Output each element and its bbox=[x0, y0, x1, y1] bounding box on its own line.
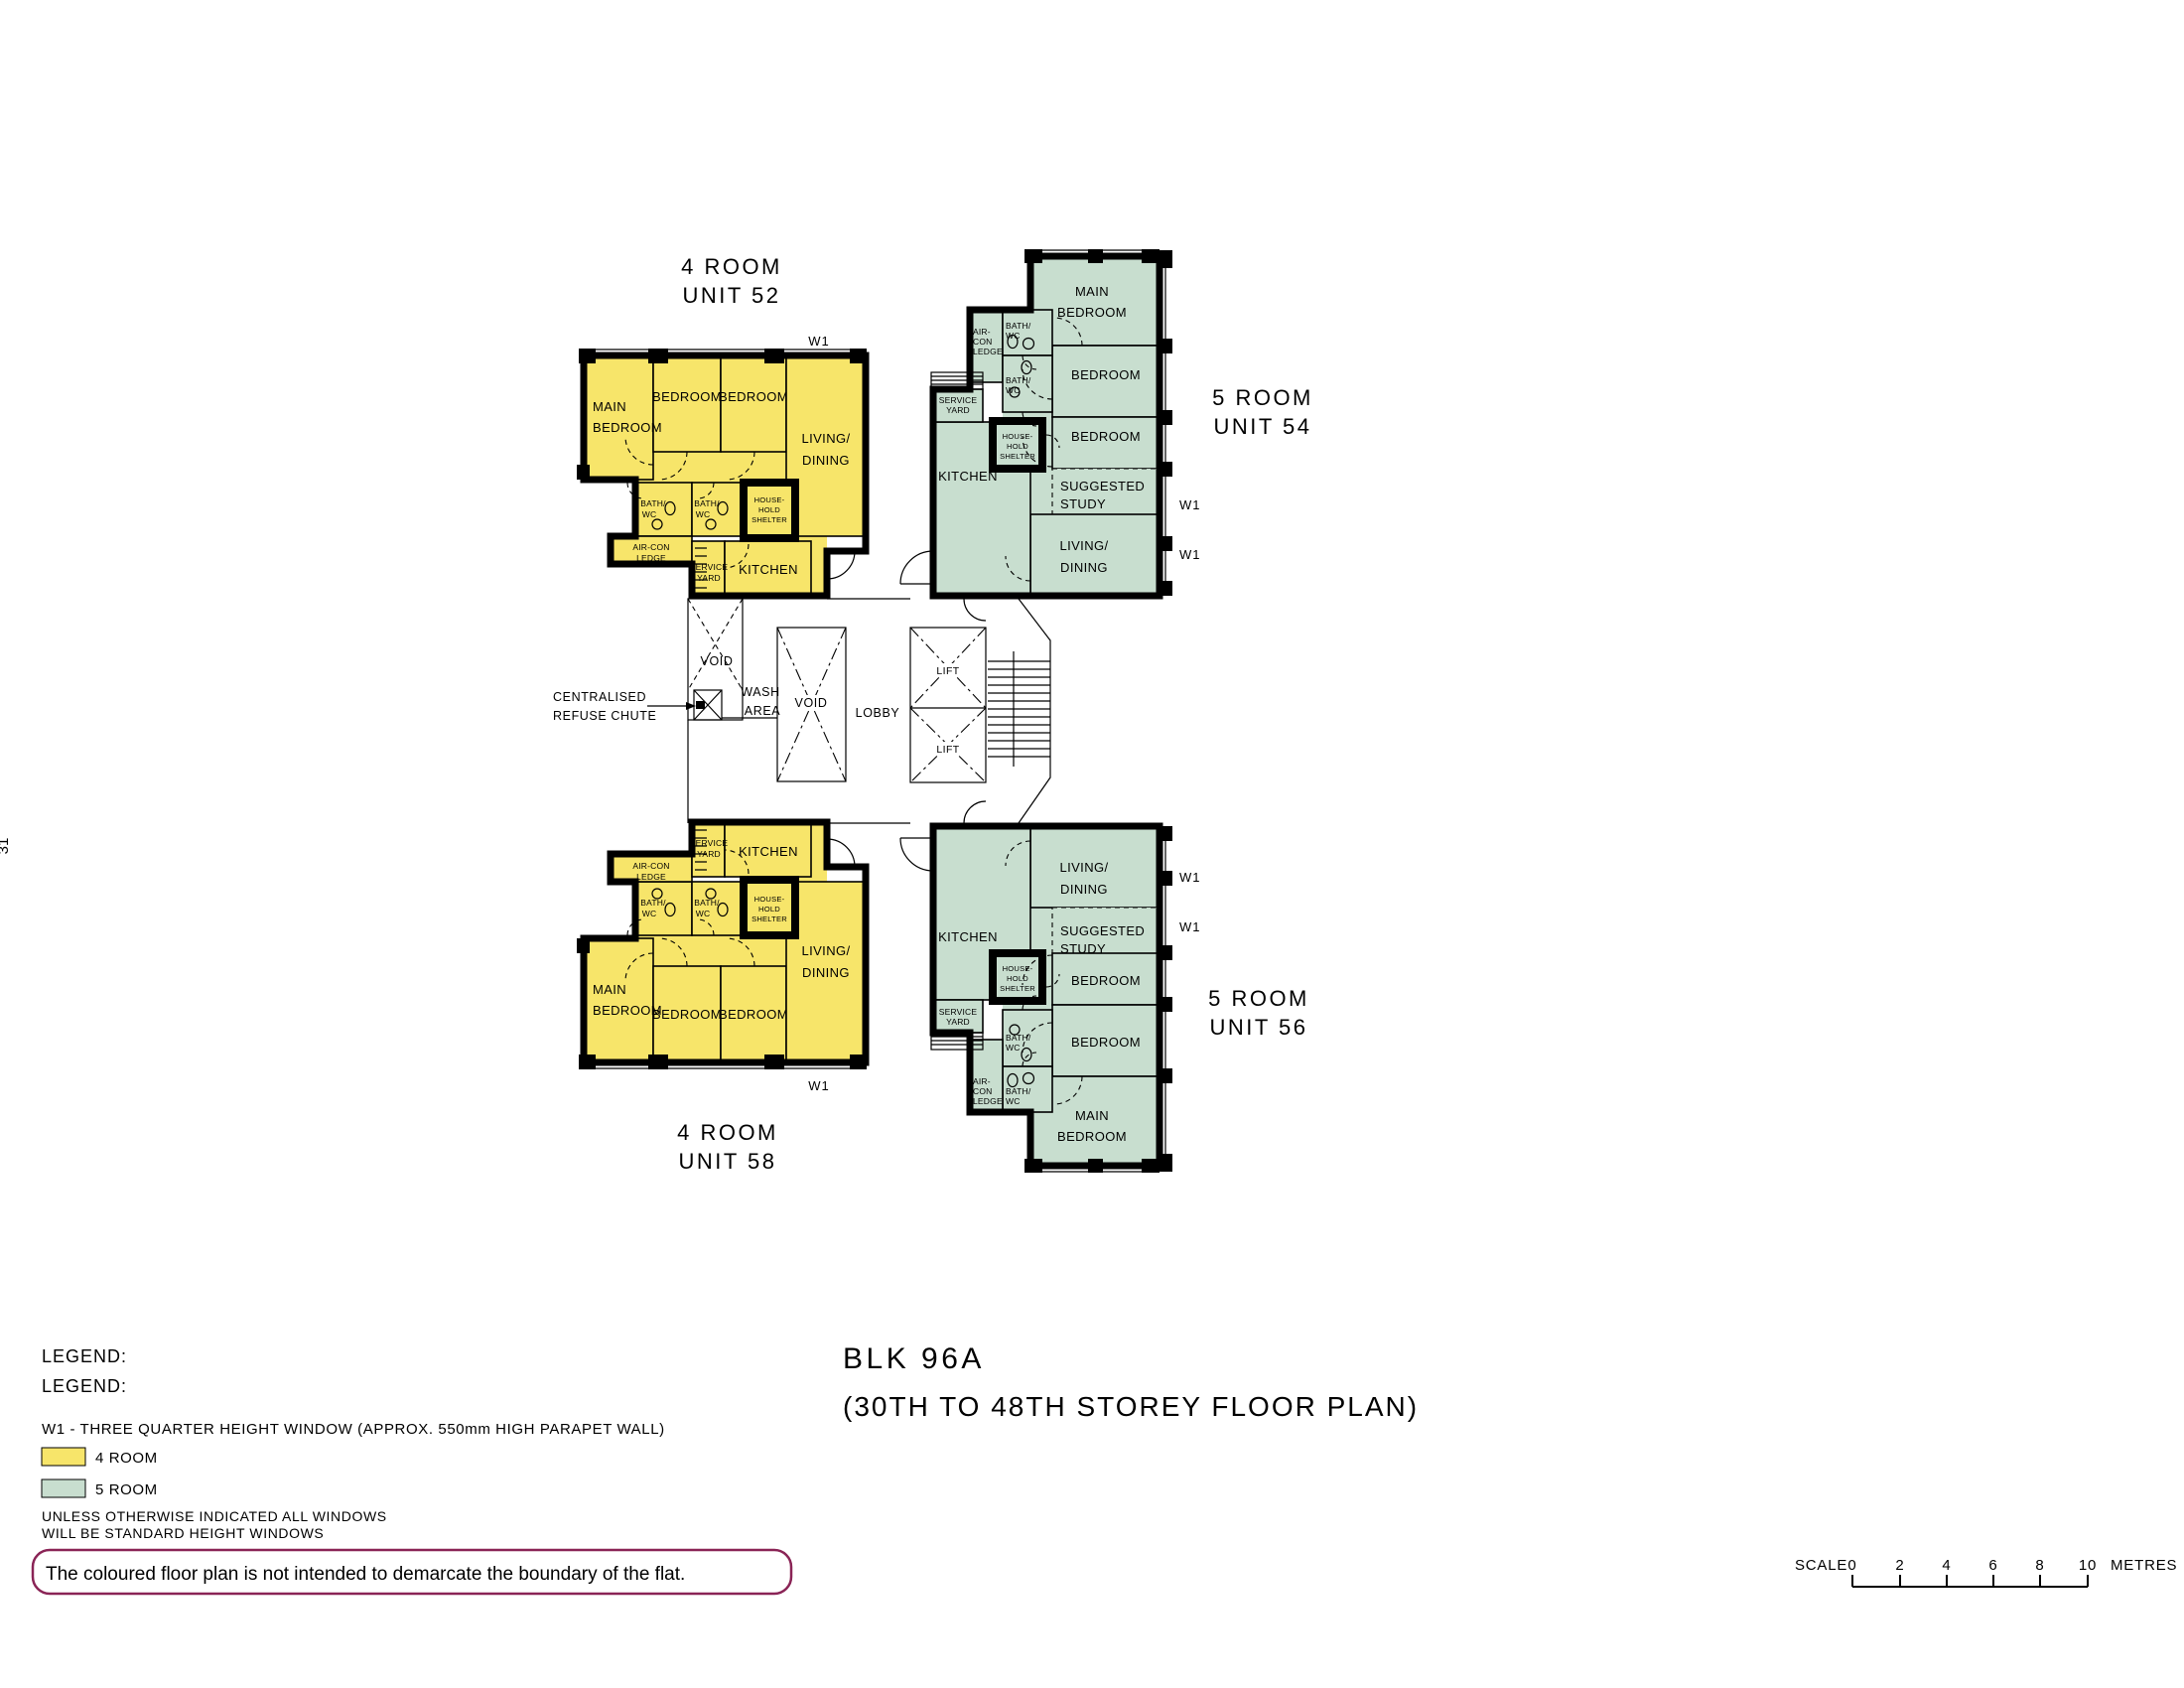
unit-58: MAIN BEDROOM BEDROOM BEDROOM LIVING/ DIN… bbox=[577, 822, 867, 1174]
unit56-shelter-label-3: SHELTER bbox=[1000, 984, 1035, 993]
unit56-study-label-1: SUGGESTED bbox=[1060, 923, 1145, 938]
unit58-living-label-2: DINING bbox=[802, 965, 850, 980]
unit56-title-type: 5 ROOM bbox=[1208, 986, 1309, 1011]
unit52-main-bedroom-label-1: MAIN bbox=[593, 399, 626, 414]
unit54-title-number: UNIT 54 bbox=[1213, 414, 1311, 439]
disclaimer-text: The coloured floor plan is not intended … bbox=[46, 1564, 685, 1585]
unit56-living-label-2: DINING bbox=[1060, 882, 1108, 897]
scale-bar: SCALE 0 2 4 6 8 10 METRES bbox=[1795, 1557, 2177, 1587]
unit58-title-number: UNIT 58 bbox=[678, 1149, 776, 1174]
unit56-aircon-label-3: LEDGE bbox=[973, 1096, 1003, 1106]
block-title: BLK 96A bbox=[843, 1342, 985, 1375]
unit54-shelter-label-1: HOUSE- bbox=[1003, 432, 1033, 441]
unit58-bedroom-a-label: BEDROOM bbox=[652, 1007, 722, 1022]
unit54-kitchen-label: KITCHEN bbox=[938, 469, 998, 484]
legend-windows-note-1: UNLESS OTHERWISE INDICATED ALL WINDOWS bbox=[42, 1508, 387, 1524]
unit52-living-label-1: LIVING/ bbox=[801, 431, 850, 446]
unit56-bedroom-b-label: BEDROOM bbox=[1071, 973, 1141, 988]
unit54-entrance-door bbox=[900, 551, 933, 584]
unit58-entrance-door bbox=[827, 839, 855, 867]
unit52-bath-a-label-1: BATH/ bbox=[640, 498, 666, 508]
unit58-shelter-label-3: SHELTER bbox=[751, 914, 787, 923]
unit52-kitchen-label: KITCHEN bbox=[739, 562, 798, 577]
unit58-living-label-1: LIVING/ bbox=[801, 943, 850, 958]
legend-label-5room: 5 ROOM bbox=[95, 1481, 158, 1498]
unit54-bedroom-a-label: BEDROOM bbox=[1071, 367, 1141, 382]
unit56-bath-b-label-2: WC bbox=[1006, 1043, 1021, 1053]
unit56-shelter-label-1: HOUSE- bbox=[1003, 964, 1033, 973]
void-small-label: VOID bbox=[701, 654, 734, 668]
central-core: VOID CENTRALISED REFUSE CHUTE WASH AREA … bbox=[553, 599, 1050, 823]
unit58-bedroom-b-label: BEDROOM bbox=[719, 1007, 788, 1022]
unit54-w1-tag-a: W1 bbox=[1179, 497, 1201, 512]
unit56-aircon-label-1: AIR- bbox=[973, 1076, 991, 1086]
scale-tick-8: 8 bbox=[2035, 1557, 2044, 1574]
legend-windows-note-2: WILL BE STANDARD HEIGHT WINDOWS bbox=[42, 1525, 324, 1541]
unit52-bath-b-label-1: BATH/ bbox=[694, 498, 720, 508]
unit54-bath-b-label-1: BATH/ bbox=[1006, 375, 1031, 385]
refuse-chute-label-1: CENTRALISED bbox=[553, 690, 646, 704]
unit54-title-type: 5 ROOM bbox=[1212, 385, 1313, 410]
unit56-kitchen-label: KITCHEN bbox=[938, 929, 998, 944]
scale-tick-2: 2 bbox=[1895, 1557, 1904, 1574]
unit54-bath-b-label-2: WC bbox=[1006, 385, 1021, 395]
unit56-entrance-door bbox=[900, 838, 933, 871]
staircase bbox=[964, 599, 1050, 823]
unit58-service-label-1: SERVICE bbox=[690, 838, 729, 848]
unit54-bedroom-b-label: BEDROOM bbox=[1071, 429, 1141, 444]
scale-bar-line bbox=[1852, 1575, 2088, 1587]
scale-label: SCALE bbox=[1795, 1557, 1847, 1574]
block-subtitle: (30TH TO 48TH STOREY FLOOR PLAN) bbox=[843, 1391, 1419, 1422]
floor-plan-drawing: MAIN BEDROOM BEDROOM BEDROOM LIVING/ DIN… bbox=[0, 0, 2184, 1688]
unit58-shelter-label-1: HOUSE- bbox=[754, 895, 785, 904]
lift-b-label: LIFT bbox=[936, 744, 959, 756]
unit54-service-label-1: SERVICE bbox=[939, 395, 978, 405]
wash-area-label-1: WASH bbox=[741, 685, 779, 699]
unit56-shelter-label-2: HOLD bbox=[1007, 974, 1028, 983]
unit54-main-bedroom-label-2: BEDROOM bbox=[1057, 305, 1127, 320]
legend-swatch-5room bbox=[42, 1479, 85, 1497]
unit56-bedroom-a-label: BEDROOM bbox=[1071, 1035, 1141, 1050]
unit56-w1-tag-a: W1 bbox=[1179, 870, 1201, 885]
lift-shaft bbox=[910, 628, 986, 782]
unit52-title-number: UNIT 52 bbox=[682, 283, 780, 308]
unit54-shelter-label-2: HOLD bbox=[1007, 442, 1028, 451]
unit56-title-number: UNIT 56 bbox=[1209, 1015, 1307, 1040]
unit54-service-label-2: YARD bbox=[946, 405, 970, 415]
unit56-w1-tag-b: W1 bbox=[1179, 919, 1201, 934]
unit-56: LIVING/ DINING SUGGESTED STUDY BEDROOM B… bbox=[900, 826, 1309, 1173]
unit54-aircon-label-1: AIR- bbox=[973, 327, 991, 337]
unit52-aircon-label-1: AIR-CON bbox=[632, 542, 669, 552]
void-small-cross bbox=[688, 599, 743, 690]
unit52-aircon-label-2: LEDGE bbox=[636, 553, 666, 563]
unit58-service-label-2: YARD bbox=[697, 849, 721, 859]
unit58-bath-a-label-2: WC bbox=[642, 909, 657, 918]
lift-a-label: LIFT bbox=[936, 665, 959, 677]
wash-area-label-2: AREA bbox=[745, 704, 781, 718]
scale-tick-10: 10 bbox=[2079, 1557, 2097, 1574]
unit52-bath-a-label-2: WC bbox=[642, 509, 657, 519]
unit54-main-bedroom-label-1: MAIN bbox=[1075, 284, 1109, 299]
scale-tick-6: 6 bbox=[1988, 1557, 1997, 1574]
legend-label-4room: 4 ROOM bbox=[95, 1450, 158, 1467]
unit54-aircon-label-2: CON bbox=[973, 337, 993, 347]
unit58-kitchen-label: KITCHEN bbox=[739, 844, 798, 859]
unit58-hall bbox=[635, 935, 786, 966]
unit52-title-type: 4 ROOM bbox=[681, 254, 782, 279]
void-big-label: VOID bbox=[795, 696, 828, 710]
unit58-w1-tag: W1 bbox=[808, 1078, 830, 1093]
unit52-shelter-label-1: HOUSE- bbox=[754, 495, 785, 504]
unit52-shelter-label-2: HOLD bbox=[758, 505, 780, 514]
unit54-bath-a-label-2: WC bbox=[1006, 331, 1021, 341]
unit54-living-label-1: LIVING/ bbox=[1059, 538, 1108, 553]
unit52-bath-b-label-2: WC bbox=[696, 509, 711, 519]
legend-heading-2: LEGEND: bbox=[42, 1376, 127, 1396]
unit56-bath-a-label-2: WC bbox=[1006, 1096, 1021, 1106]
unit52-entrance-door bbox=[827, 551, 855, 579]
legend-swatch-4room bbox=[42, 1448, 85, 1466]
unit58-title-type: 4 ROOM bbox=[677, 1120, 778, 1145]
unit54-study-label-2: STUDY bbox=[1060, 496, 1106, 511]
unit54-living-label-2: DINING bbox=[1060, 560, 1108, 575]
refuse-chute-marker bbox=[696, 701, 705, 709]
legend-heading-1: LEGEND: bbox=[42, 1346, 127, 1366]
unit52-service-label-2: YARD bbox=[697, 573, 721, 583]
floor-plan-sheet: MAIN BEDROOM BEDROOM BEDROOM LIVING/ DIN… bbox=[0, 0, 2184, 1688]
unit58-bath-a-label-1: BATH/ bbox=[640, 898, 666, 908]
unit56-main-bedroom-label-1: MAIN bbox=[1075, 1108, 1109, 1123]
unit56-aircon-label-2: CON bbox=[973, 1086, 993, 1096]
unit56-study-label-2: STUDY bbox=[1060, 941, 1106, 956]
unit58-aircon-label-1: AIR-CON bbox=[632, 861, 669, 871]
unit54-bath-a-label-1: BATH/ bbox=[1006, 321, 1031, 331]
unit54-study-label-1: SUGGESTED bbox=[1060, 479, 1145, 493]
unit58-aircon-label-2: LEDGE bbox=[636, 872, 666, 882]
unit52-service-label-1: SERVICE bbox=[690, 562, 729, 572]
unit56-service-label-2: YARD bbox=[946, 1017, 970, 1027]
unit52-main-bedroom bbox=[584, 355, 653, 480]
title-block: BLK 96A (30TH TO 48TH STOREY FLOOR PLAN) bbox=[843, 1342, 1419, 1422]
unit58-bath-b-label-1: BATH/ bbox=[694, 898, 720, 908]
legend: LEGEND: LEGEND: W1 - THREE QUARTER HEIGH… bbox=[33, 1346, 791, 1594]
unit52-w1-tag: W1 bbox=[808, 334, 830, 349]
unit56-living-label-1: LIVING/ bbox=[1059, 860, 1108, 875]
unit56-bath-b-label-1: BATH/ bbox=[1006, 1033, 1031, 1043]
unit58-main-bedroom bbox=[584, 938, 653, 1062]
unit52-hall bbox=[635, 452, 786, 483]
lobby-label: LOBBY bbox=[856, 706, 900, 720]
unit52-living-label-2: DINING bbox=[802, 453, 850, 468]
unit56-bath-a-label-1: BATH/ bbox=[1006, 1086, 1031, 1096]
unit54-w1-tag-b: W1 bbox=[1179, 547, 1201, 562]
unit56-main-bedroom-label-2: BEDROOM bbox=[1057, 1129, 1127, 1144]
unit52-bedroom-a-label: BEDROOM bbox=[652, 389, 722, 404]
scale-unit: METRES bbox=[2111, 1557, 2177, 1574]
unit52-bedroom-b-label: BEDROOM bbox=[719, 389, 788, 404]
legend-w1-note: W1 - THREE QUARTER HEIGHT WINDOW (APPROX… bbox=[42, 1421, 665, 1438]
scale-tick-4: 4 bbox=[1942, 1557, 1951, 1574]
unit58-main-bedroom-label-1: MAIN bbox=[593, 982, 626, 997]
unit54-shelter-label-3: SHELTER bbox=[1000, 452, 1035, 461]
unit54-aircon-label-3: LEDGE bbox=[973, 347, 1003, 356]
unit52-shelter-label-3: SHELTER bbox=[751, 515, 787, 524]
unit-54: MAIN BEDROOM BEDROOM BEDROOM SUGGESTED S… bbox=[900, 249, 1313, 596]
unit56-service-label-1: SERVICE bbox=[939, 1007, 978, 1017]
unit58-shelter-label-2: HOLD bbox=[758, 905, 780, 914]
unit58-bath-b-label-2: WC bbox=[696, 909, 711, 918]
unit54-living-dining bbox=[1030, 514, 1160, 596]
unit52-main-bedroom-label-2: BEDROOM bbox=[593, 420, 662, 435]
page-number: 31 bbox=[0, 838, 12, 855]
refuse-chute-label-2: REFUSE CHUTE bbox=[553, 709, 656, 723]
unit-52: MAIN BEDROOM BEDROOM BEDROOM LIVING/ DIN… bbox=[577, 254, 867, 596]
scale-tick-0: 0 bbox=[1847, 1557, 1856, 1574]
